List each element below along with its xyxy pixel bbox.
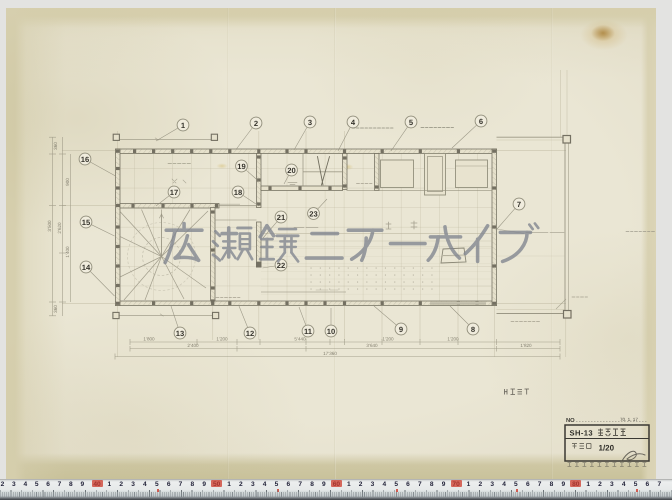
svg-text:SH-13: SH-13 <box>570 429 594 438</box>
svg-text:9: 9 <box>399 325 403 334</box>
svg-text:16: 16 <box>81 155 89 164</box>
svg-text:1’200: 1’200 <box>382 337 394 342</box>
svg-text:2’620: 2’620 <box>57 222 62 234</box>
svg-text:1’200: 1’200 <box>447 337 459 342</box>
svg-text:7: 7 <box>517 200 521 209</box>
svg-text:1’200: 1’200 <box>216 337 228 342</box>
svg-text:360: 360 <box>53 305 58 313</box>
svg-text:6: 6 <box>479 117 483 126</box>
svg-text:3’640: 3’640 <box>366 343 378 348</box>
svg-text:13: 13 <box>176 329 184 338</box>
svg-text:1’820: 1’820 <box>520 343 532 348</box>
svg-text:NO: NO <box>566 417 575 424</box>
svg-text:8: 8 <box>471 325 475 334</box>
svg-text:15: 15 <box>82 218 91 227</box>
svg-text:11: 11 <box>304 327 313 336</box>
svg-text:3’500: 3’500 <box>47 220 52 232</box>
svg-text:20: 20 <box>287 166 295 175</box>
svg-text:2: 2 <box>254 119 258 128</box>
svg-text:12: 12 <box>246 329 254 338</box>
svg-text:70. 1. 17: 70. 1. 17 <box>620 417 638 422</box>
svg-text:17’360: 17’360 <box>323 351 337 356</box>
svg-text:1’400: 1’400 <box>65 246 70 258</box>
svg-text:2’400: 2’400 <box>187 343 199 348</box>
svg-text:3: 3 <box>308 118 312 127</box>
svg-text:14: 14 <box>82 263 91 272</box>
svg-text:10: 10 <box>327 327 335 336</box>
svg-text:17: 17 <box>170 188 178 197</box>
svg-text:18: 18 <box>234 188 242 197</box>
svg-text:21: 21 <box>277 213 286 222</box>
svg-text:5’440: 5’440 <box>294 337 306 342</box>
svg-text:19: 19 <box>237 162 245 171</box>
svg-text:1’800: 1’800 <box>143 337 155 342</box>
svg-text:23: 23 <box>309 209 317 218</box>
svg-text:1/20: 1/20 <box>599 444 615 453</box>
svg-text:360: 360 <box>53 142 58 150</box>
svg-text:900: 900 <box>65 178 70 186</box>
